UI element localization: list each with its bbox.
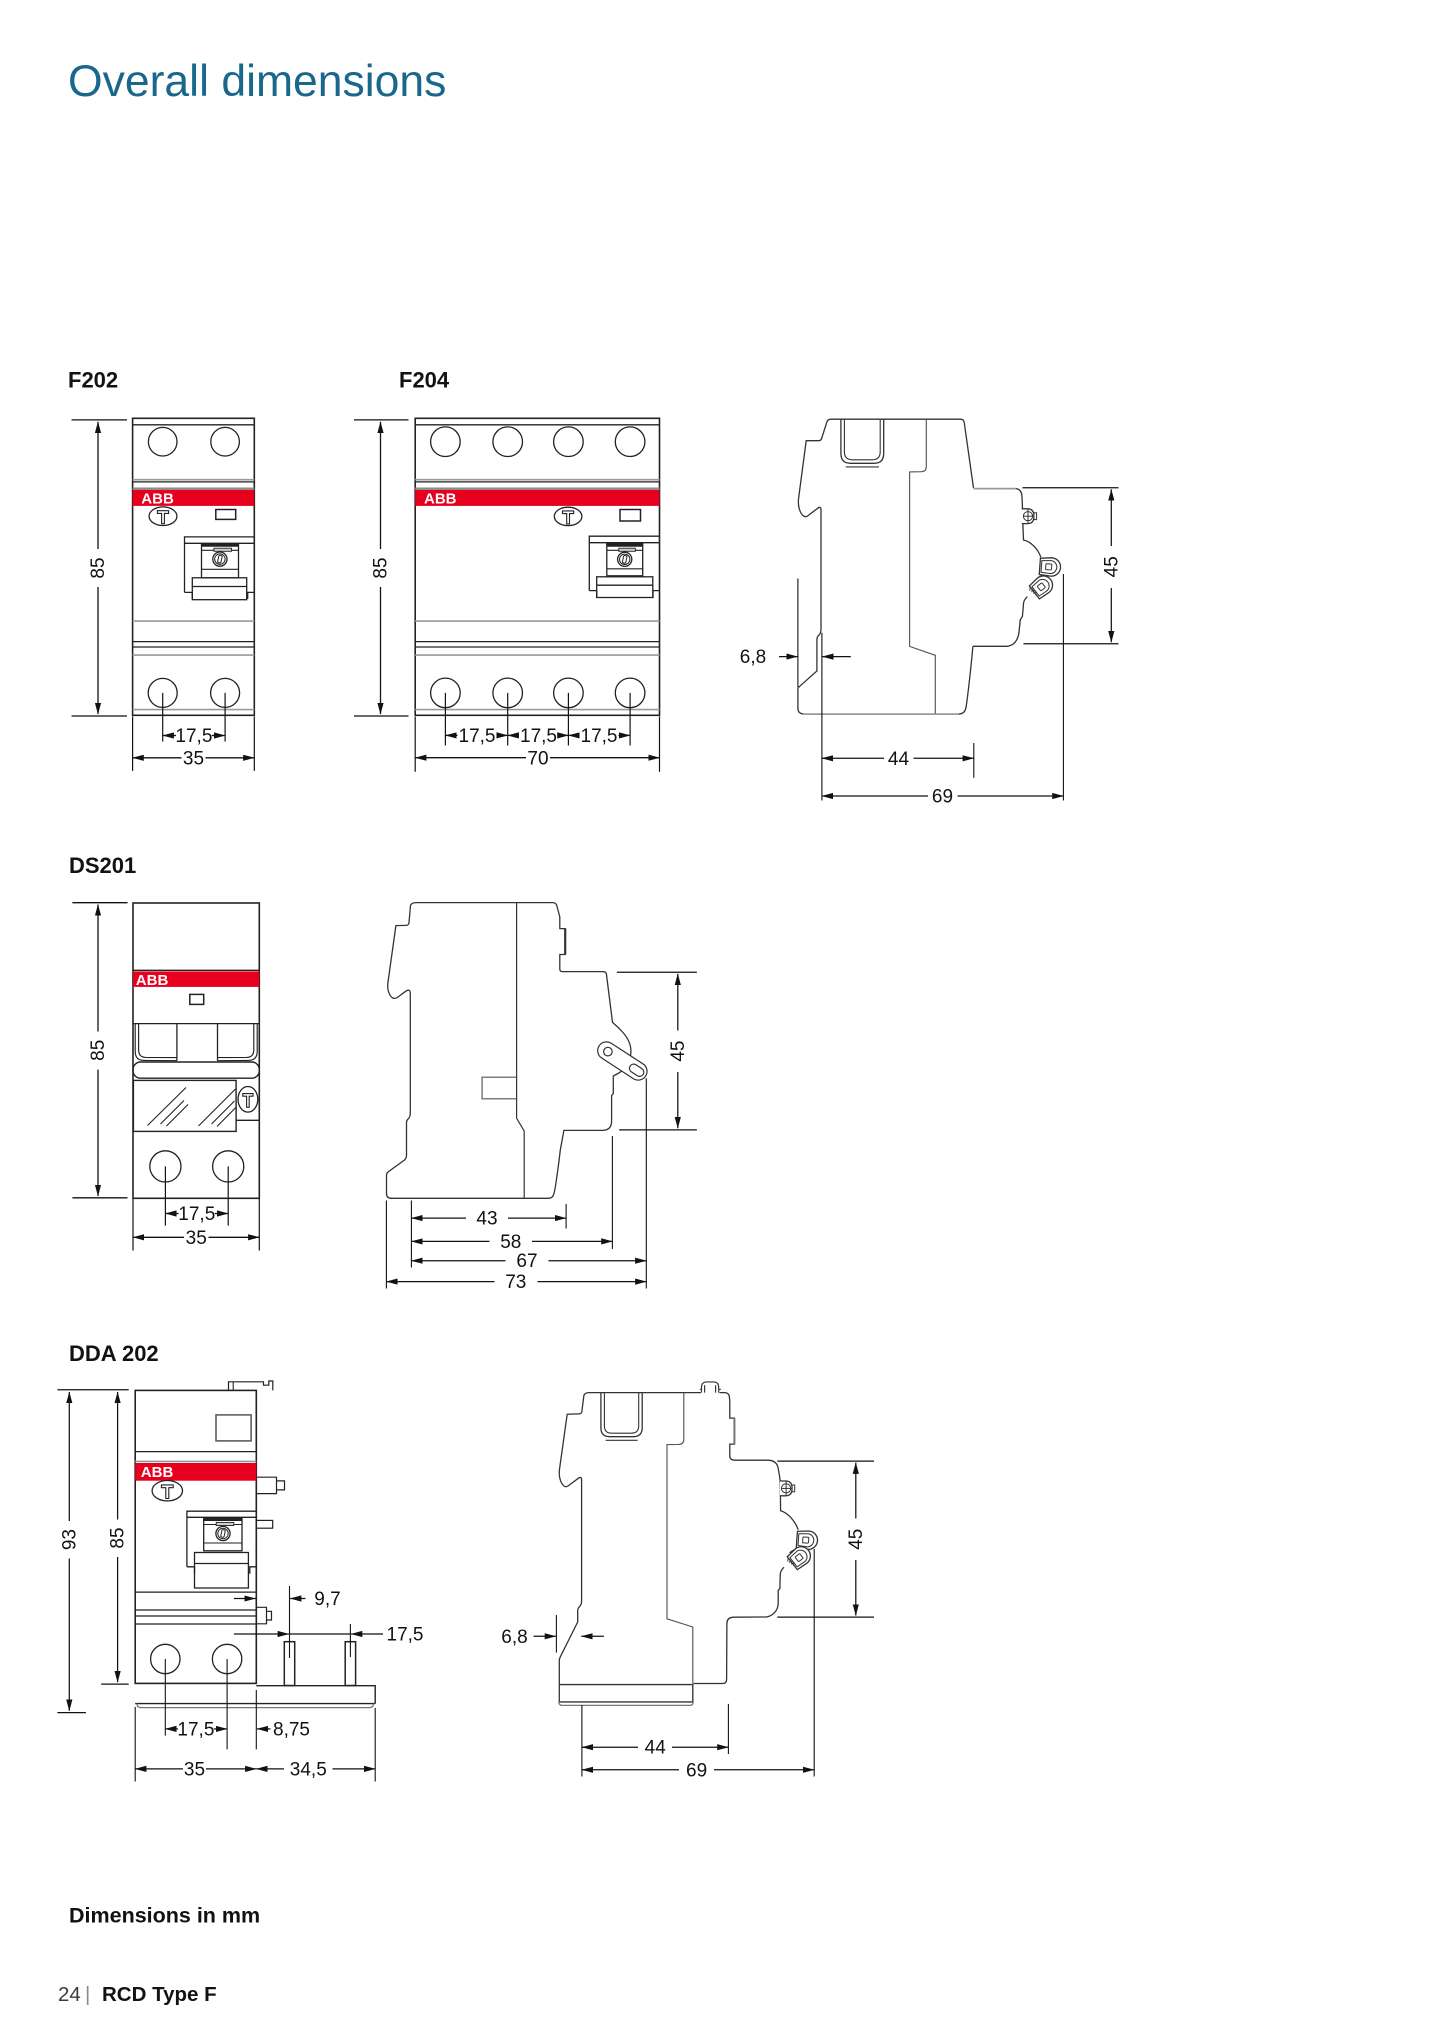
svg-text:69: 69 [932,787,953,808]
svg-text:|: | [85,1983,90,2006]
svg-text:70: 70 [527,748,548,769]
svg-text:35: 35 [184,1759,205,1780]
svg-text:6,8: 6,8 [740,647,766,668]
svg-text:8,75: 8,75 [273,1719,310,1740]
svg-text:44: 44 [888,749,910,770]
svg-text:17,5: 17,5 [459,726,496,747]
svg-text:ABB: ABB [424,490,457,507]
svg-text:69: 69 [686,1760,707,1781]
svg-text:F202: F202 [68,368,118,393]
svg-text:ABB: ABB [136,972,169,989]
svg-text:17,5: 17,5 [520,726,557,747]
svg-text:58: 58 [500,1232,521,1253]
svg-text:85: 85 [371,557,392,578]
svg-text:Overall dimensions: Overall dimensions [68,57,446,106]
svg-text:45: 45 [1101,556,1122,577]
svg-text:17,5: 17,5 [177,1719,214,1740]
svg-text:85: 85 [88,557,109,578]
svg-text:RCD Type F: RCD Type F [102,1983,217,2006]
svg-text:34,5: 34,5 [290,1759,327,1780]
svg-text:DS201: DS201 [69,853,136,878]
svg-text:45: 45 [846,1529,867,1550]
svg-text:F204: F204 [399,368,450,393]
svg-text:DDA 202: DDA 202 [69,1341,159,1366]
svg-text:35: 35 [186,1228,207,1249]
svg-text:43: 43 [476,1209,497,1230]
svg-text:45: 45 [668,1041,689,1062]
svg-text:67: 67 [516,1251,537,1272]
svg-text:35: 35 [183,749,204,770]
svg-text:ABB: ABB [141,1464,174,1481]
svg-text:85: 85 [88,1040,109,1061]
svg-text:85: 85 [108,1527,129,1548]
svg-text:44: 44 [645,1738,667,1759]
svg-text:17,5: 17,5 [387,1625,424,1646]
svg-text:17,5: 17,5 [175,726,212,747]
svg-text:Dimensions in mm: Dimensions in mm [69,1904,260,1928]
svg-text:24: 24 [58,1983,81,2006]
svg-text:9,7: 9,7 [314,1589,340,1610]
svg-text:73: 73 [505,1272,526,1293]
svg-text:17,5: 17,5 [581,726,618,747]
svg-text:93: 93 [59,1529,80,1550]
svg-text:6,8: 6,8 [501,1627,527,1648]
svg-text:ABB: ABB [141,490,174,507]
svg-text:17,5: 17,5 [178,1204,215,1225]
